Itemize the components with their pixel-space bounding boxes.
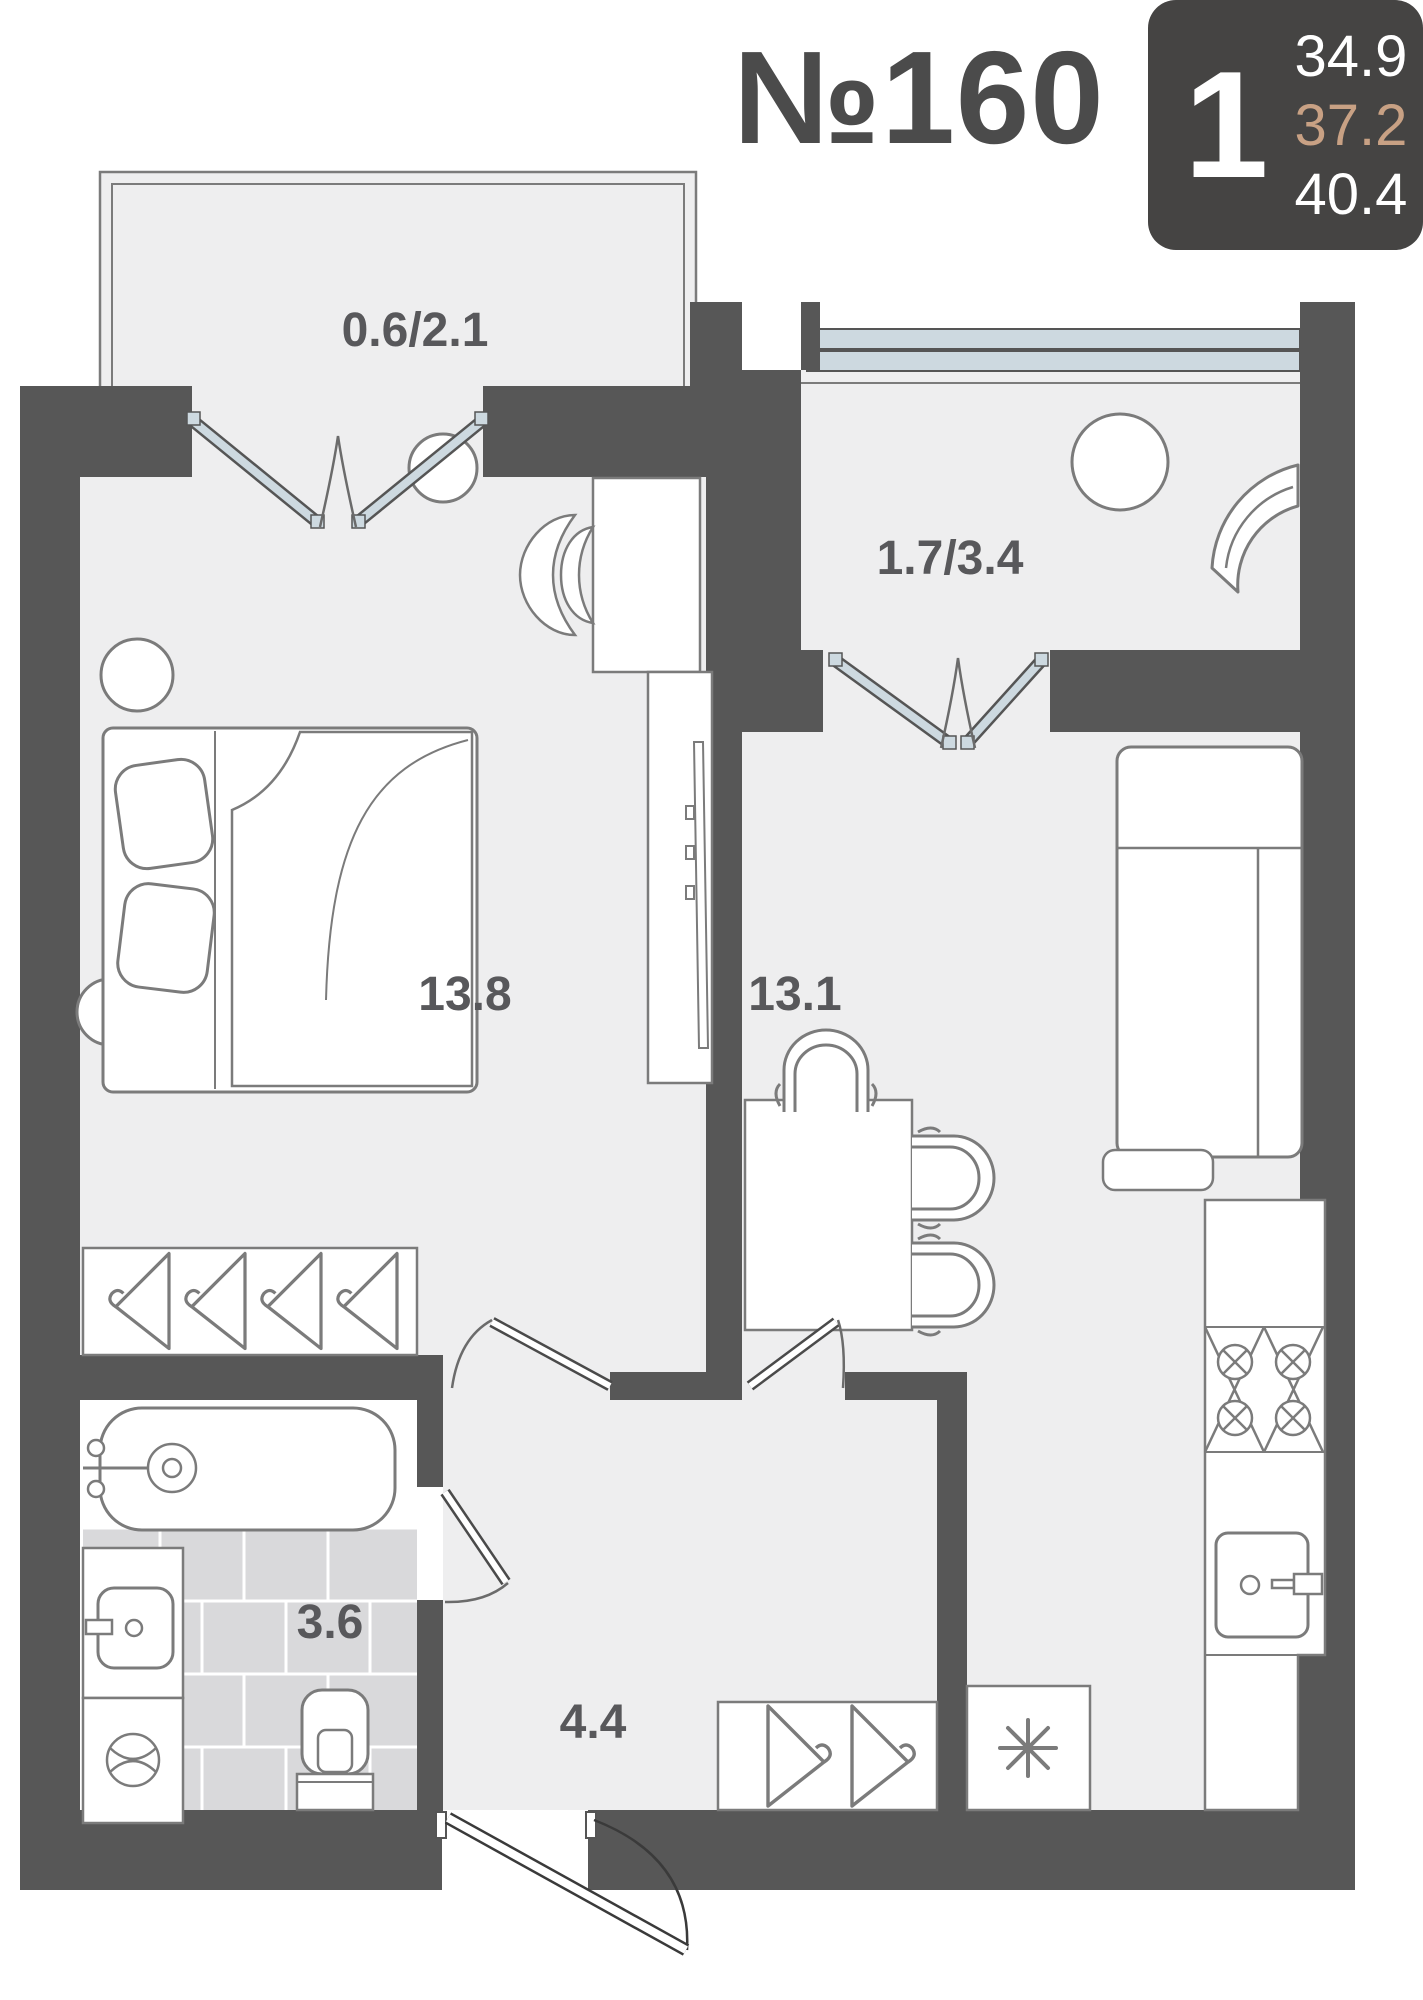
wall-bath-divider-top bbox=[417, 1400, 443, 1487]
sofa-armrest bbox=[1103, 1150, 1213, 1190]
label-hallway: 4.4 bbox=[560, 1696, 627, 1749]
label-balcony-right: 1.7/3.4 bbox=[877, 532, 1024, 585]
wall-balcony-right-bottom bbox=[1050, 650, 1300, 732]
label-living: 13.1 bbox=[748, 968, 841, 1021]
wall-bottom-right bbox=[588, 1810, 1355, 1890]
sofa bbox=[1103, 747, 1302, 1190]
pillow bbox=[115, 881, 217, 995]
washbasin bbox=[86, 1588, 173, 1668]
blanket bbox=[232, 732, 472, 1086]
wall-bath-divider-bottom bbox=[417, 1600, 443, 1823]
bedside-stool-top bbox=[101, 639, 173, 711]
round-table bbox=[1072, 414, 1168, 510]
refrigerator-spot bbox=[967, 1686, 1090, 1810]
floor-plan: 0.6/2.1 1.7/3.4 13.8 13.1 3.6 4.4 bbox=[0, 0, 1423, 2000]
window-band-inner bbox=[807, 351, 1300, 371]
wall-hall-middle bbox=[610, 1372, 706, 1400]
desk bbox=[593, 478, 700, 672]
washing-machine-icon bbox=[83, 1698, 183, 1823]
label-balcony-left: 0.6/2.1 bbox=[342, 304, 489, 357]
tv-cabinet bbox=[648, 672, 712, 1083]
hall-wardrobe bbox=[718, 1702, 937, 1810]
toilet bbox=[297, 1690, 373, 1810]
wall-above-bathroom bbox=[20, 1355, 443, 1400]
label-bedroom: 13.8 bbox=[418, 968, 511, 1021]
bathtub bbox=[83, 1408, 395, 1530]
bed bbox=[103, 728, 477, 1092]
label-bathroom: 3.6 bbox=[297, 1596, 364, 1649]
pillow bbox=[112, 756, 216, 872]
window-band-outer bbox=[807, 329, 1300, 349]
balcony-right-floor bbox=[801, 370, 1300, 660]
bedroom-wardrobe bbox=[83, 1248, 417, 1355]
dining-table bbox=[745, 1100, 912, 1330]
wall-top-right bbox=[483, 386, 706, 477]
wall-left bbox=[20, 386, 80, 1810]
sink-icon bbox=[1216, 1533, 1322, 1637]
asterisk-icon bbox=[1000, 1720, 1056, 1776]
